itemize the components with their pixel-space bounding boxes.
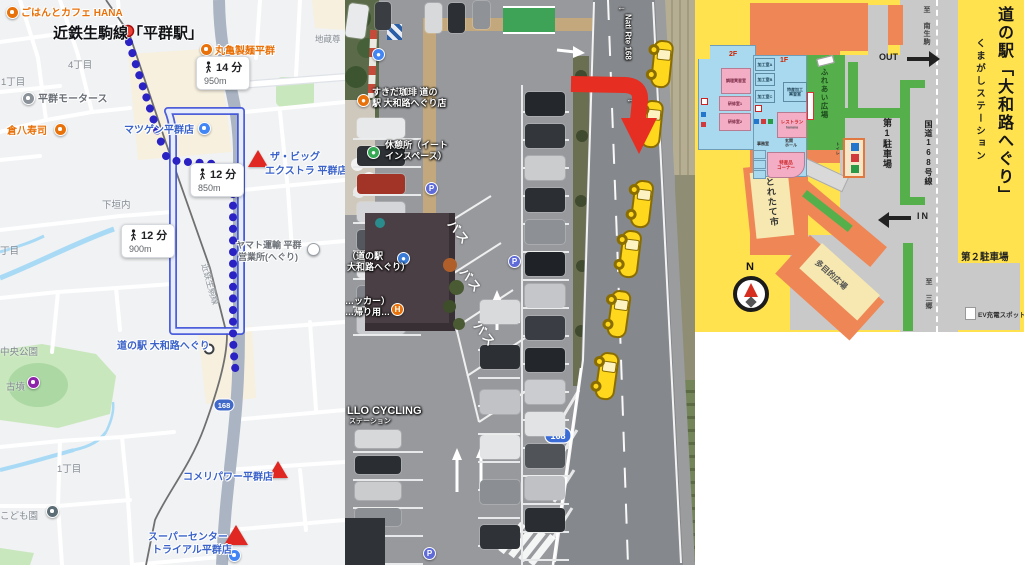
womens-toilet-icon xyxy=(851,154,859,162)
poi-label: コメリパワー平群店 xyxy=(183,472,273,484)
walking-badge[interactable]: 12 分 900m xyxy=(121,224,175,258)
office-label: 事務室 xyxy=(757,141,769,147)
poi-label: ヤマト運輸 平群 xyxy=(236,240,302,250)
first-aid-icon xyxy=(701,98,708,105)
compass-tail xyxy=(745,296,756,307)
sushi-restaurant-icon xyxy=(54,123,67,136)
specialty-corner-label: 特産品コーナー xyxy=(777,160,795,170)
room-label: 研修室1 xyxy=(728,101,742,106)
walking-badge[interactable]: 12 分 850m xyxy=(190,163,244,197)
road-centerline xyxy=(936,0,938,332)
walk-time: 14 分 xyxy=(216,59,242,75)
out-arrow xyxy=(907,57,929,61)
area-label: 下垣内 xyxy=(102,197,131,211)
screenshot: 168 近鉄生駒線「平群駅」 近鉄生駒線 ごはんとカフェ HANA 地蔵尊 丸亀… xyxy=(0,0,1024,565)
walk-time: 12 分 xyxy=(141,227,167,243)
training-room-1: 研修室1 xyxy=(719,96,751,111)
accessible-toilet-icon xyxy=(851,165,859,173)
historic-site-icon xyxy=(27,376,40,389)
storage-room xyxy=(753,160,766,169)
ev-charging-icon xyxy=(965,307,976,320)
storage-room xyxy=(753,150,766,159)
facility-map-panel[interactable]: 多目的広場 とれたて市 ふれあい広場 2F 調理実習室 研修室1 研修室2 xyxy=(695,0,1024,565)
processing-room-a: 加工室A xyxy=(755,58,775,71)
area-label: こども園 xyxy=(0,508,38,522)
restaurant-icon xyxy=(200,43,213,56)
parking2-label: 第２駐車場 xyxy=(961,249,1009,263)
room-label: 研修室2 xyxy=(728,120,742,125)
poi-label: ごはんとカフェ HANA xyxy=(21,8,123,20)
map-title: 近鉄生駒線「平群駅」 xyxy=(53,22,203,43)
shopping-icon xyxy=(198,122,211,135)
area-label: 1丁目 xyxy=(1,74,25,88)
in-label: IN xyxy=(917,211,930,221)
training-room-2: 研修室2 xyxy=(719,113,751,131)
facility-grounds xyxy=(888,5,903,45)
facility-title: 道の駅「大和路へぐり」 xyxy=(991,6,1015,204)
green-strip xyxy=(845,108,900,118)
to-north-label: 至 南生駒 xyxy=(921,6,931,46)
walk-distance: 850m xyxy=(198,183,236,193)
processing-room-c: 加工室C xyxy=(755,90,775,103)
area-label: 丁目 xyxy=(0,243,19,257)
destination-triangle xyxy=(248,150,268,167)
compass-n-label: N xyxy=(746,261,754,273)
room-label: 加工室A xyxy=(758,62,773,67)
room-label: 調理実習室 xyxy=(726,79,746,84)
business-icon xyxy=(307,243,320,256)
compass-icon xyxy=(733,276,769,312)
in-arrow-head xyxy=(878,212,889,228)
poi-label: マツゲン平群店 xyxy=(124,125,194,137)
room-label: 特産加工実習室 xyxy=(787,87,803,96)
out-arrow-head xyxy=(929,51,940,67)
poi-label: エクストラ 平群店 xyxy=(265,166,345,178)
toilet-label: トイレ xyxy=(835,142,841,156)
floor-label: 2F xyxy=(729,51,737,58)
room-label: 加工室B xyxy=(758,77,773,82)
specialty-processing-room: 特産加工実習室 xyxy=(783,82,807,102)
poi-label: 平群モータース xyxy=(38,94,108,106)
storage-room xyxy=(753,170,766,179)
building-notch xyxy=(698,45,710,59)
in-arrow xyxy=(889,216,911,220)
red-route-arrow xyxy=(345,0,695,565)
restaurant-icon xyxy=(6,6,19,19)
school-icon xyxy=(46,505,59,518)
compass-needle xyxy=(744,283,758,297)
area-label: 4丁目 xyxy=(68,57,92,71)
parking1-label: 第1駐車場 xyxy=(881,118,894,169)
route-map-panel[interactable]: 168 近鉄生駒線「平群駅」 近鉄生駒線 ごはんとカフェ HANA 地蔵尊 丸亀… xyxy=(0,0,345,565)
route-label: 国道168号線 xyxy=(923,120,934,186)
restaurant-label: レストランhanana xyxy=(781,120,804,131)
green-strip xyxy=(900,80,910,205)
poi-label: トライアル平群店 xyxy=(152,545,232,557)
out-label: OUT xyxy=(879,52,898,62)
green-strip xyxy=(848,62,858,108)
first-aid-icon xyxy=(755,105,762,112)
fresh-market-label: とれたて市 xyxy=(763,176,781,227)
walk-distance: 900m xyxy=(129,244,167,254)
walking-icon xyxy=(198,168,207,181)
floor-label: 1F xyxy=(780,57,788,64)
ev-label: EV充電スポット xyxy=(978,309,1024,319)
mens-toilet-icon xyxy=(754,119,759,124)
car-repair-icon xyxy=(22,92,35,105)
green-strip xyxy=(903,243,913,331)
poi-label: ザ・ビッグ xyxy=(270,152,320,164)
area-label: 中央公園 xyxy=(0,344,38,358)
womens-toilet-icon xyxy=(701,122,706,127)
green-strip xyxy=(900,80,925,88)
fureai-plaza-label: ふれあい広場 xyxy=(819,68,830,119)
toilet-block xyxy=(843,138,865,178)
walking-icon xyxy=(129,229,138,242)
map-canvas: 168 xyxy=(0,0,345,565)
poi-label: 営業所(へぐり) xyxy=(238,252,298,262)
accessible-toilet-icon xyxy=(768,119,773,124)
area-label: 1丁目 xyxy=(57,461,81,475)
walk-time: 12 分 xyxy=(210,166,236,182)
route-168-shield: 168 xyxy=(218,401,231,410)
mens-toilet-icon xyxy=(851,143,859,151)
facility-grounds xyxy=(840,3,868,51)
lawn-sign xyxy=(807,92,814,120)
cooking-room: 調理実習室 xyxy=(721,68,751,94)
poi-label: 道の駅 大和路へぐり xyxy=(117,341,210,353)
mens-toilet-icon xyxy=(701,112,706,117)
to-south-label: 至 三郷 xyxy=(923,278,933,310)
walking-icon xyxy=(204,61,213,74)
poi-label: 倉八寿司 xyxy=(7,126,47,138)
walk-distance: 950m xyxy=(204,76,242,86)
processing-room-b: 加工室B xyxy=(755,73,775,86)
specialty-corner: 特産品コーナー xyxy=(767,152,805,178)
green-strip xyxy=(900,197,925,205)
restaurant-room: レストランhanana xyxy=(777,112,807,138)
womens-toilet-icon xyxy=(761,119,766,124)
poi-label: 地蔵尊 xyxy=(315,33,341,45)
room-label: 加工室C xyxy=(758,94,773,99)
fresh-market: とれたて市 xyxy=(750,169,795,239)
exit-lane xyxy=(868,5,888,55)
satellite-panel[interactable]: 168 xyxy=(345,0,695,565)
entrance-hall-label: 玄関ホール xyxy=(785,139,797,148)
walking-badge[interactable]: 14 分 950m xyxy=(196,56,250,90)
area-label: 古墳 xyxy=(6,379,25,393)
poi-label: スーパーセンター xyxy=(148,532,228,544)
facility-subtitle: くまがしステーション xyxy=(972,38,986,163)
